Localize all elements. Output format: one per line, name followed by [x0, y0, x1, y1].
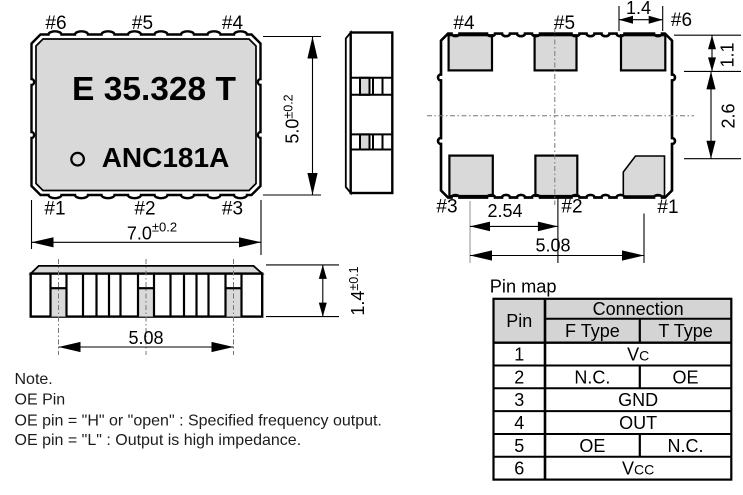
svg-text:ANC181A: ANC181A [102, 142, 230, 173]
svg-text:5.08: 5.08 [535, 236, 570, 256]
svg-text:F Type: F Type [565, 321, 620, 341]
svg-text:OE pin = "H" or "open" : Speci: OE pin = "H" or "open" : Specified frequ… [15, 412, 382, 429]
svg-text:OE pin = "L" : Output is high: OE pin = "L" : Output is high impedance. [15, 432, 302, 449]
svg-text:OE Pin: OE Pin [15, 392, 66, 409]
svg-text:#5: #5 [554, 13, 575, 34]
svg-text:E 35.328 T: E 35.328 T [72, 71, 236, 108]
svg-text:2: 2 [514, 367, 524, 387]
svg-text:VCC: VCC [622, 459, 654, 479]
svg-text:OE: OE [579, 436, 605, 456]
svg-text:Note.: Note. [15, 371, 53, 388]
svg-text:T Type: T Type [658, 321, 712, 341]
svg-text:1.1: 1.1 [718, 42, 738, 67]
svg-text:#2: #2 [561, 197, 582, 218]
svg-text:#3: #3 [436, 197, 457, 218]
svg-text:OE: OE [673, 367, 699, 387]
svg-text:#1: #1 [657, 197, 678, 218]
svg-text:GND: GND [618, 390, 658, 410]
svg-text:Connection: Connection [593, 299, 684, 319]
svg-text:5.08: 5.08 [128, 328, 163, 348]
svg-text:#6: #6 [671, 10, 692, 31]
svg-text:2.54: 2.54 [487, 201, 522, 221]
svg-text:N.C.: N.C. [574, 367, 610, 387]
svg-text:1: 1 [514, 345, 524, 365]
svg-text:OUT: OUT [619, 413, 657, 433]
svg-text:#3: #3 [222, 199, 243, 220]
svg-text:Pin map: Pin map [490, 276, 557, 296]
svg-text:#5: #5 [132, 13, 153, 34]
svg-text:#1: #1 [44, 199, 65, 220]
svg-text:Pin: Pin [506, 311, 532, 331]
svg-text:1.4: 1.4 [626, 0, 651, 18]
svg-text:#6: #6 [45, 13, 66, 34]
svg-text:#4: #4 [453, 13, 475, 34]
svg-text:#2: #2 [134, 199, 155, 220]
svg-text:5: 5 [514, 436, 524, 456]
svg-text:N.C.: N.C. [668, 436, 704, 456]
svg-text:6: 6 [514, 459, 524, 479]
svg-text:VC: VC [627, 345, 649, 365]
svg-text:3: 3 [514, 390, 524, 410]
svg-text:4: 4 [514, 413, 524, 433]
svg-text:2.6: 2.6 [719, 103, 739, 128]
svg-text:#4: #4 [222, 13, 244, 34]
